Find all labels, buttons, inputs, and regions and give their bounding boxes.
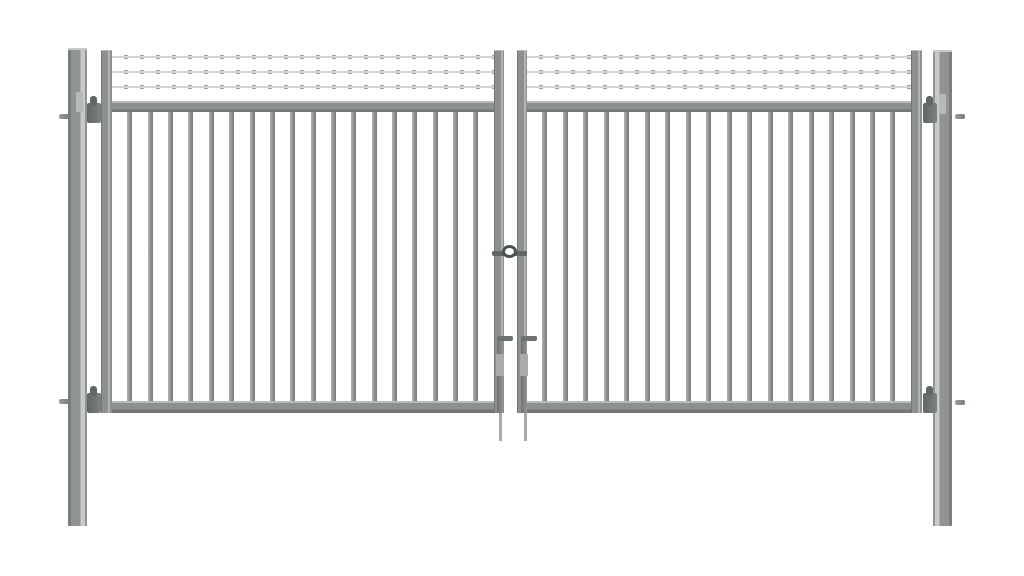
left-drop-bolt-lower-rod <box>499 413 502 441</box>
infill-bar <box>665 112 670 401</box>
right-drop-bolt-handle <box>521 336 537 341</box>
barbed-wire-strand <box>527 85 911 89</box>
infill-bar <box>290 112 295 401</box>
infill-bar <box>127 112 132 401</box>
infill-bar <box>829 112 834 401</box>
infill-bar <box>311 112 316 401</box>
infill-bar <box>209 112 214 401</box>
right-leaf-top-rail <box>517 101 922 112</box>
infill-bar <box>604 112 609 401</box>
barbed-wire-strand <box>527 70 911 74</box>
left-gate-post <box>68 48 87 526</box>
right-bottom-hinge-pin <box>926 386 933 396</box>
infill-bar <box>686 112 691 401</box>
left-bottom-hinge <box>87 393 101 413</box>
left-leaf-barbed-wires <box>112 50 494 100</box>
infill-bar <box>351 112 356 401</box>
left-gate-leaf <box>101 50 504 413</box>
left-drop-bolt-guide <box>496 354 504 376</box>
infill-bar <box>148 112 153 401</box>
right-leaf-barbed-wires <box>527 50 911 100</box>
right-gate-leaf <box>517 50 922 413</box>
left-top-hinge-pin <box>90 96 97 106</box>
infill-bar <box>645 112 650 401</box>
infill-bar <box>850 112 855 401</box>
left-leaf-bottom-rail <box>101 401 504 413</box>
infill-bar <box>331 112 336 401</box>
infill-bar <box>727 112 732 401</box>
infill-bar <box>747 112 752 401</box>
infill-bar <box>788 112 793 401</box>
barbed-wire-strand <box>112 85 494 89</box>
left-leaf-hinge-stile <box>101 50 112 413</box>
infill-bar <box>453 112 458 401</box>
infill-bar <box>890 112 895 401</box>
left-leaf-top-rail <box>101 101 504 112</box>
infill-bar <box>270 112 275 401</box>
right-top-hinge-bolt <box>955 114 965 119</box>
infill-bar <box>583 112 588 401</box>
left-top-hinge <box>87 103 101 123</box>
right-drop-bolt-guide <box>520 354 528 376</box>
right-drop-bolt-lower-rod <box>524 413 527 441</box>
right-leaf-bottom-rail <box>517 401 922 413</box>
infill-bar <box>473 112 478 401</box>
barbed-wire-strand <box>112 70 494 74</box>
right-top-hinge <box>923 103 937 123</box>
infill-bar <box>392 112 397 401</box>
left-post-hinge-plate <box>76 92 83 112</box>
infill-bar <box>188 112 193 401</box>
left-bottom-hinge-pin <box>90 386 97 396</box>
right-post-hinge-plate <box>939 94 946 114</box>
padlock-eye-ring <box>502 245 517 258</box>
infill-bar <box>250 112 255 401</box>
infill-bar <box>412 112 417 401</box>
barbed-wire-strand <box>112 55 494 59</box>
infill-bar <box>229 112 234 401</box>
right-leaf-infill-bars <box>527 112 911 401</box>
right-bottom-hinge-bolt <box>955 400 965 405</box>
right-top-hinge-pin <box>926 96 933 106</box>
infill-bar <box>624 112 629 401</box>
left-bottom-hinge-bolt <box>59 399 69 404</box>
infill-bar <box>542 112 547 401</box>
infill-bar <box>563 112 568 401</box>
right-leaf-hinge-stile <box>911 50 922 413</box>
infill-bar <box>372 112 377 401</box>
infill-bar <box>768 112 773 401</box>
infill-bar <box>433 112 438 401</box>
left-drop-bolt-handle <box>497 336 513 341</box>
infill-bar <box>168 112 173 401</box>
left-leaf-infill-bars <box>112 112 494 401</box>
barbed-wire-strand <box>527 55 911 59</box>
left-top-hinge-bolt <box>59 114 69 119</box>
double-gate-render <box>0 0 1024 576</box>
infill-bar <box>809 112 814 401</box>
infill-bar <box>706 112 711 401</box>
infill-bar <box>870 112 875 401</box>
right-bottom-hinge <box>923 393 937 413</box>
